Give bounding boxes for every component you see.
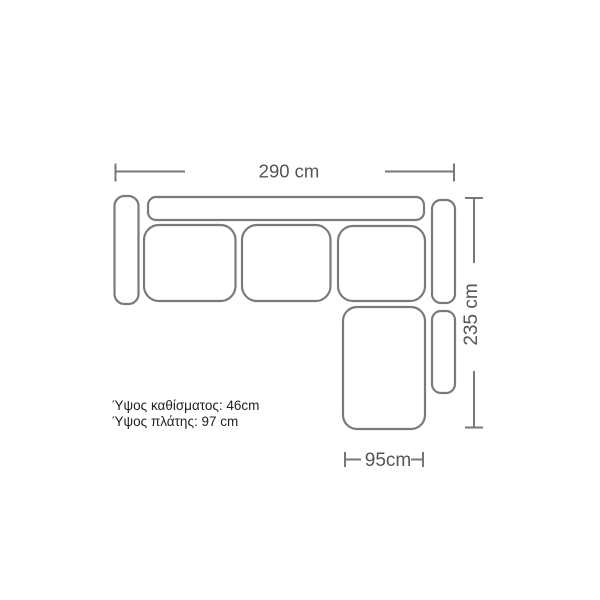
svg-text:235 cm: 235 cm [461, 283, 482, 345]
svg-text:95cm: 95cm [365, 450, 411, 471]
svg-text:290 cm: 290 cm [259, 161, 320, 182]
svg-text:Ύψος καθίσματος: 46cm: Ύψος καθίσματος: 46cm [112, 398, 259, 413]
svg-text:Ύψος πλάτης: 97 cm: Ύψος πλάτης: 97 cm [112, 414, 238, 429]
